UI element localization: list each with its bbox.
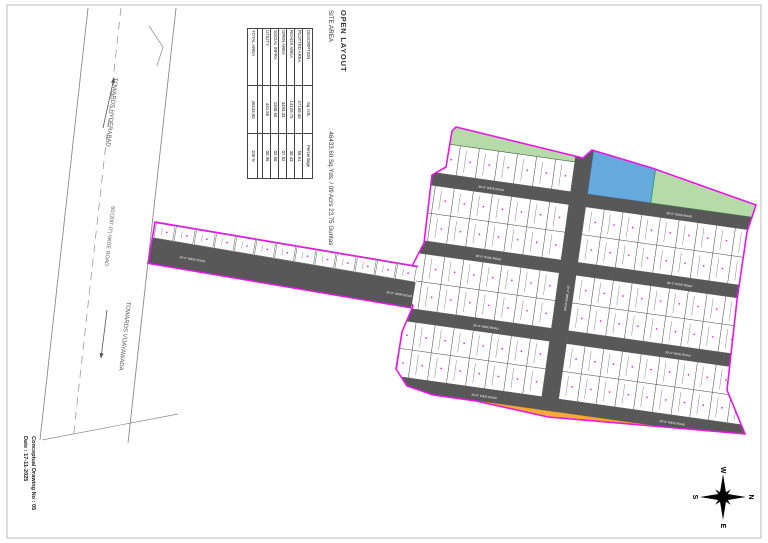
site-area-line: SITE AREA: 46433.60 Sq.Yds. / 09 Acrs 23… — [327, 10, 334, 262]
area-table-cell: SOCIAL INFRA — [271, 29, 279, 86]
plot-number-mark — [759, 273, 761, 275]
area-table-cell: 07.52 — [279, 134, 287, 179]
plot — [402, 391, 425, 423]
plot-text-mark — [465, 403, 468, 425]
arrow-towards-vijayawada — [101, 310, 107, 358]
plot — [532, 298, 555, 328]
plot — [718, 324, 741, 354]
site-area-value: : 46433.60 Sq.Yds. / 09 Acrs 23.75 Gunta… — [327, 128, 334, 245]
plot-number-mark — [431, 156, 433, 158]
plot — [546, 202, 569, 232]
plot-number-mark — [471, 414, 473, 416]
area-table-cell: ROADS AREA — [287, 29, 295, 86]
area-table-cell: PLOTTED AREA — [295, 29, 303, 86]
area-table-cell — [258, 29, 263, 86]
area-table-cell: 02.58 — [271, 134, 279, 179]
area-table-cell: 46433.60 — [248, 86, 258, 134]
plot — [741, 299, 764, 329]
plot — [154, 223, 175, 241]
plot — [174, 226, 195, 244]
plot — [355, 257, 376, 275]
compass-letter-top: W — [719, 467, 726, 474]
title-block: OPEN LAYOUT SITE AREA: 46433.60 Sq.Yds. … — [312, 10, 348, 262]
plot-text-mark — [428, 398, 431, 420]
plot-number-mark — [740, 410, 742, 412]
access-corridor: 30'-0" WIDE ROAD30'-0" WIDE ROAD — [148, 222, 418, 308]
plot — [439, 396, 462, 428]
plot — [234, 237, 255, 255]
highway-kink-line — [149, 26, 163, 66]
plot-number-mark — [762, 384, 764, 386]
plot-text-mark — [763, 334, 766, 354]
plot — [527, 339, 550, 369]
plot — [722, 296, 745, 326]
highway-bottom-line — [42, 414, 178, 440]
area-table-cell — [258, 134, 263, 179]
plot-text-mark — [738, 372, 741, 392]
drawing-date: Date : 17-11-2025 — [21, 436, 29, 540]
drawing-number: Conceptual Drawing No : 05 — [29, 436, 37, 540]
plot — [732, 228, 755, 258]
plot — [418, 141, 441, 173]
plot — [194, 230, 215, 248]
plot — [737, 327, 760, 357]
plot — [536, 270, 559, 300]
area-table-row: SOCIAL INFRA1200.6502.58 — [271, 29, 279, 179]
area-table-cell: OPEN AREA — [279, 29, 287, 86]
drawing-sheet: TOWARDS HYDERABAD 60'(200'-0") WIDE ROAD… — [0, 0, 768, 543]
area-table-row: UTILITY441.5500.96 — [263, 29, 271, 179]
plot — [542, 230, 565, 260]
compass-letter-bottom: E — [719, 524, 726, 529]
plot-number-mark — [433, 409, 435, 411]
label-towards-vijayawada: TOWARDS VIJAYAWADA — [117, 301, 131, 371]
area-table-cell: 30.43 — [287, 134, 295, 179]
compass-letter-left: S — [691, 495, 698, 500]
plot-number-mark — [421, 225, 423, 227]
area-table-body: DESCRIPTIONSq.Yds.PercentagePLOTTED AREA… — [248, 29, 313, 179]
area-table-cell: Percentage — [303, 134, 313, 179]
plot-text-mark — [753, 263, 756, 283]
plot-text-mark — [757, 375, 760, 395]
drawing-title: OPEN LAYOUT — [339, 10, 348, 262]
area-statement: DESCRIPTIONSq.Yds.PercentagePLOTTED AREA… — [255, 28, 313, 178]
plot — [383, 388, 406, 420]
plot-number-mark — [753, 314, 755, 316]
plot — [458, 399, 481, 431]
plot-text-mark — [757, 235, 760, 255]
plot — [421, 393, 444, 425]
plot-text-mark — [416, 216, 419, 236]
plot-text-mark — [744, 332, 747, 352]
plot-number-mark — [744, 382, 746, 384]
area-table-row: ROADS AREA14129.7530.43 — [287, 29, 295, 179]
compass-letter-right: N — [747, 494, 754, 499]
area-table-cell — [258, 86, 263, 134]
plot-number-mark — [415, 406, 417, 408]
plot — [523, 366, 546, 396]
area-table-cell: TOTAL AREA — [248, 29, 258, 86]
compass-main-star — [700, 474, 746, 520]
area-table-cell: UTILITY — [263, 29, 271, 86]
plot-number-mark — [452, 412, 454, 414]
area-table-cell: DESCRIPTION — [303, 29, 313, 86]
area-table-cell: 00.96 — [263, 134, 271, 179]
area-table-row: OPEN AREA3493.3307.52 — [279, 29, 287, 179]
area-table-cell: 100 % — [248, 134, 258, 179]
area-table-header: DESCRIPTIONSq.Yds.Percentage — [303, 29, 313, 179]
plot-text-mark — [390, 393, 393, 415]
area-table-spacer — [258, 29, 263, 179]
plot — [746, 258, 768, 288]
area-table-cell: 58.51 — [295, 134, 303, 179]
plot-text-mark — [425, 145, 428, 167]
plot-number-mark — [763, 245, 765, 247]
plot — [755, 329, 768, 359]
area-table-cell: Sq.Yds. — [303, 86, 313, 134]
plot — [746, 398, 768, 428]
area-table-cell: 1200.65 — [271, 86, 279, 134]
label-highway-name: 60'(200'-0") WIDE ROAD — [103, 206, 116, 266]
site-area-label: SITE AREA — [327, 10, 334, 128]
plot-text-mark — [446, 401, 449, 423]
plot-text-mark — [748, 304, 751, 324]
plot-number-mark — [396, 404, 398, 406]
compass-rose: W N E S — [691, 467, 754, 529]
area-table-cell: 27169.30 — [295, 86, 303, 134]
area-table-cell: 441.55 — [263, 86, 271, 134]
area-table-total: TOTAL AREA46433.60100 % — [248, 29, 258, 179]
plot-number-mark — [759, 412, 761, 414]
plot-number-mark — [749, 341, 751, 343]
layout-plan: TOWARDS HYDERABAD 60'(200'-0") WIDE ROAD… — [0, 0, 768, 543]
plot — [750, 370, 768, 400]
plot-number-mark — [425, 198, 427, 200]
plot-text-mark — [409, 396, 412, 418]
area-table-cell: 3493.33 — [279, 86, 287, 134]
highway-edge-left — [40, 8, 88, 440]
plot — [395, 264, 416, 282]
area-table-cell: 14129.75 — [287, 86, 295, 134]
plot — [712, 365, 735, 395]
area-table-row: PLOTTED AREA27169.3058.51 — [295, 29, 303, 179]
plot — [375, 260, 396, 278]
plot-text-mark — [753, 402, 756, 422]
area-table: DESCRIPTIONSq.Yds.PercentagePLOTTED AREA… — [248, 28, 314, 179]
plot-text-mark — [420, 188, 423, 208]
plot — [750, 231, 768, 261]
plot — [214, 233, 235, 251]
footer-note: Conceptual Drawing No : 05 Date : 17-11-… — [13, 436, 37, 540]
plot — [275, 243, 296, 261]
site-area: 30'-0" WIDE ROAD30'-0" WIDE ROAD30'-0" W… — [379, 90, 768, 471]
plot — [731, 367, 754, 397]
plot — [552, 159, 575, 191]
plot — [254, 240, 275, 258]
